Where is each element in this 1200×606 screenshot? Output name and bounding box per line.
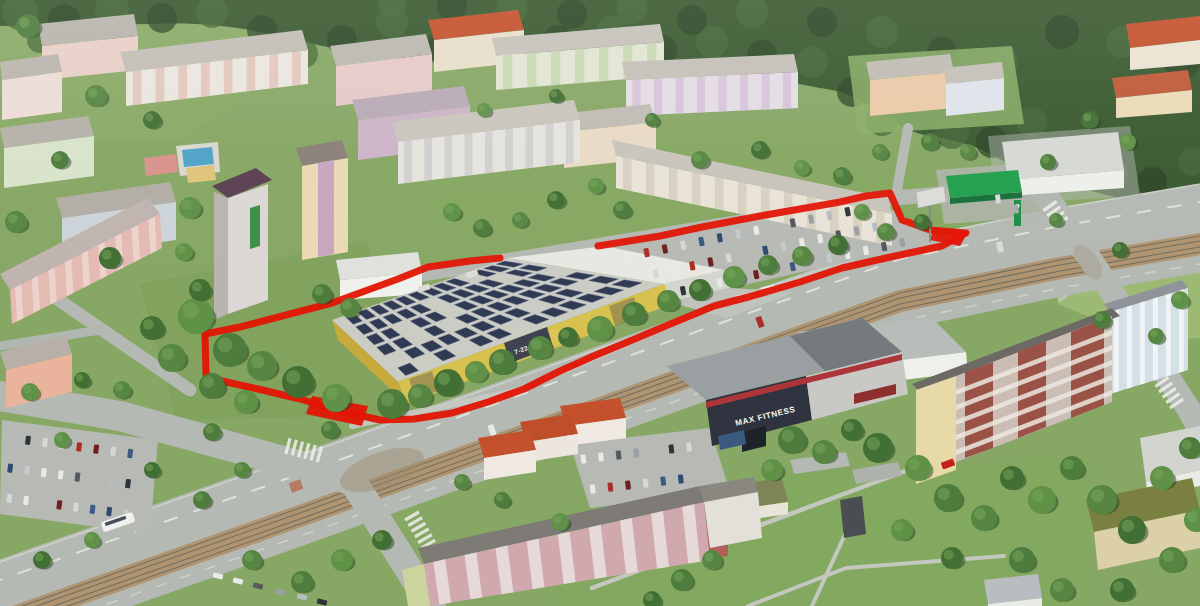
- building-house-red-a: [478, 430, 536, 480]
- aerial-imagery-view: MAX FITNESS 7-22: [0, 0, 1200, 606]
- parked-car: [660, 476, 666, 486]
- building-tower-main: [212, 168, 272, 320]
- building-tower-back-cream: [296, 140, 348, 260]
- parked-car: [625, 480, 631, 490]
- building-apt-left-edge-a: [0, 54, 62, 120]
- building-apt-topright-redroof: [1126, 16, 1200, 70]
- parked-car: [668, 444, 674, 454]
- parked-car: [616, 450, 622, 460]
- building-house-tr-hip: [1112, 70, 1192, 118]
- building-gas-station: [946, 170, 1022, 204]
- building-apt-tr-b: [944, 62, 1004, 116]
- parked-car: [580, 454, 586, 464]
- parked-car: [643, 478, 649, 488]
- parked-car: [598, 452, 604, 462]
- parked-car: [686, 442, 692, 452]
- building-apt-tr-a: [866, 54, 954, 116]
- building-kiosk-dark: [840, 496, 866, 538]
- building-apt-left-mint: [0, 116, 94, 188]
- parked-car: [633, 448, 639, 458]
- parked-car: [678, 474, 684, 484]
- parked-car: [590, 484, 596, 494]
- parked-car: [607, 482, 613, 492]
- scene-canvas: MAX FITNESS 7-22: [0, 0, 1200, 606]
